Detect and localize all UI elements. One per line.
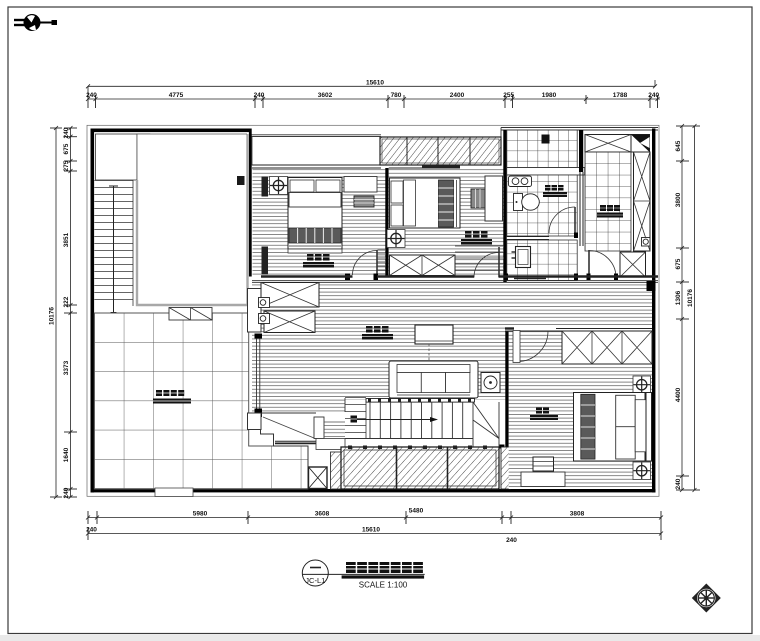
svg-text:240: 240 [86,527,97,534]
svg-text:240: 240 [648,92,659,99]
svg-text:3602: 3602 [318,92,333,99]
svg-text:15610: 15610 [366,80,384,87]
svg-text:675: 675 [675,258,682,269]
svg-text:4400: 4400 [675,387,682,402]
svg-text:275: 275 [63,160,70,171]
svg-text:255: 255 [503,92,514,99]
svg-text:15610: 15610 [362,527,380,534]
svg-text:5980: 5980 [193,511,208,518]
svg-text:3851: 3851 [63,232,70,247]
svg-text:1788: 1788 [613,92,628,99]
svg-text:1980: 1980 [542,92,557,99]
svg-text:222: 222 [63,296,70,307]
svg-text:SCALE 1:100: SCALE 1:100 [359,581,408,590]
svg-text:JC-L1: JC-L1 [305,576,325,585]
svg-text:4775: 4775 [169,92,184,99]
svg-text:1306: 1306 [675,290,682,305]
svg-text:645: 645 [675,140,682,151]
svg-text:240: 240 [675,478,682,489]
svg-text:240: 240 [86,92,97,99]
svg-text:3608: 3608 [315,511,330,518]
svg-text:240: 240 [63,487,70,498]
svg-text:240: 240 [63,127,70,138]
svg-text:675: 675 [63,143,70,154]
svg-text:3808: 3808 [570,511,585,518]
svg-text:2400: 2400 [450,92,465,99]
svg-text:240: 240 [254,92,265,99]
svg-text:5480: 5480 [409,508,424,515]
svg-text:10176: 10176 [687,289,694,307]
svg-text:3373: 3373 [63,360,70,375]
svg-text:1640: 1640 [63,447,70,462]
svg-text:10176: 10176 [49,307,56,325]
svg-text:240: 240 [506,537,517,544]
svg-text:780: 780 [391,92,402,99]
svg-text:3800: 3800 [675,192,682,207]
